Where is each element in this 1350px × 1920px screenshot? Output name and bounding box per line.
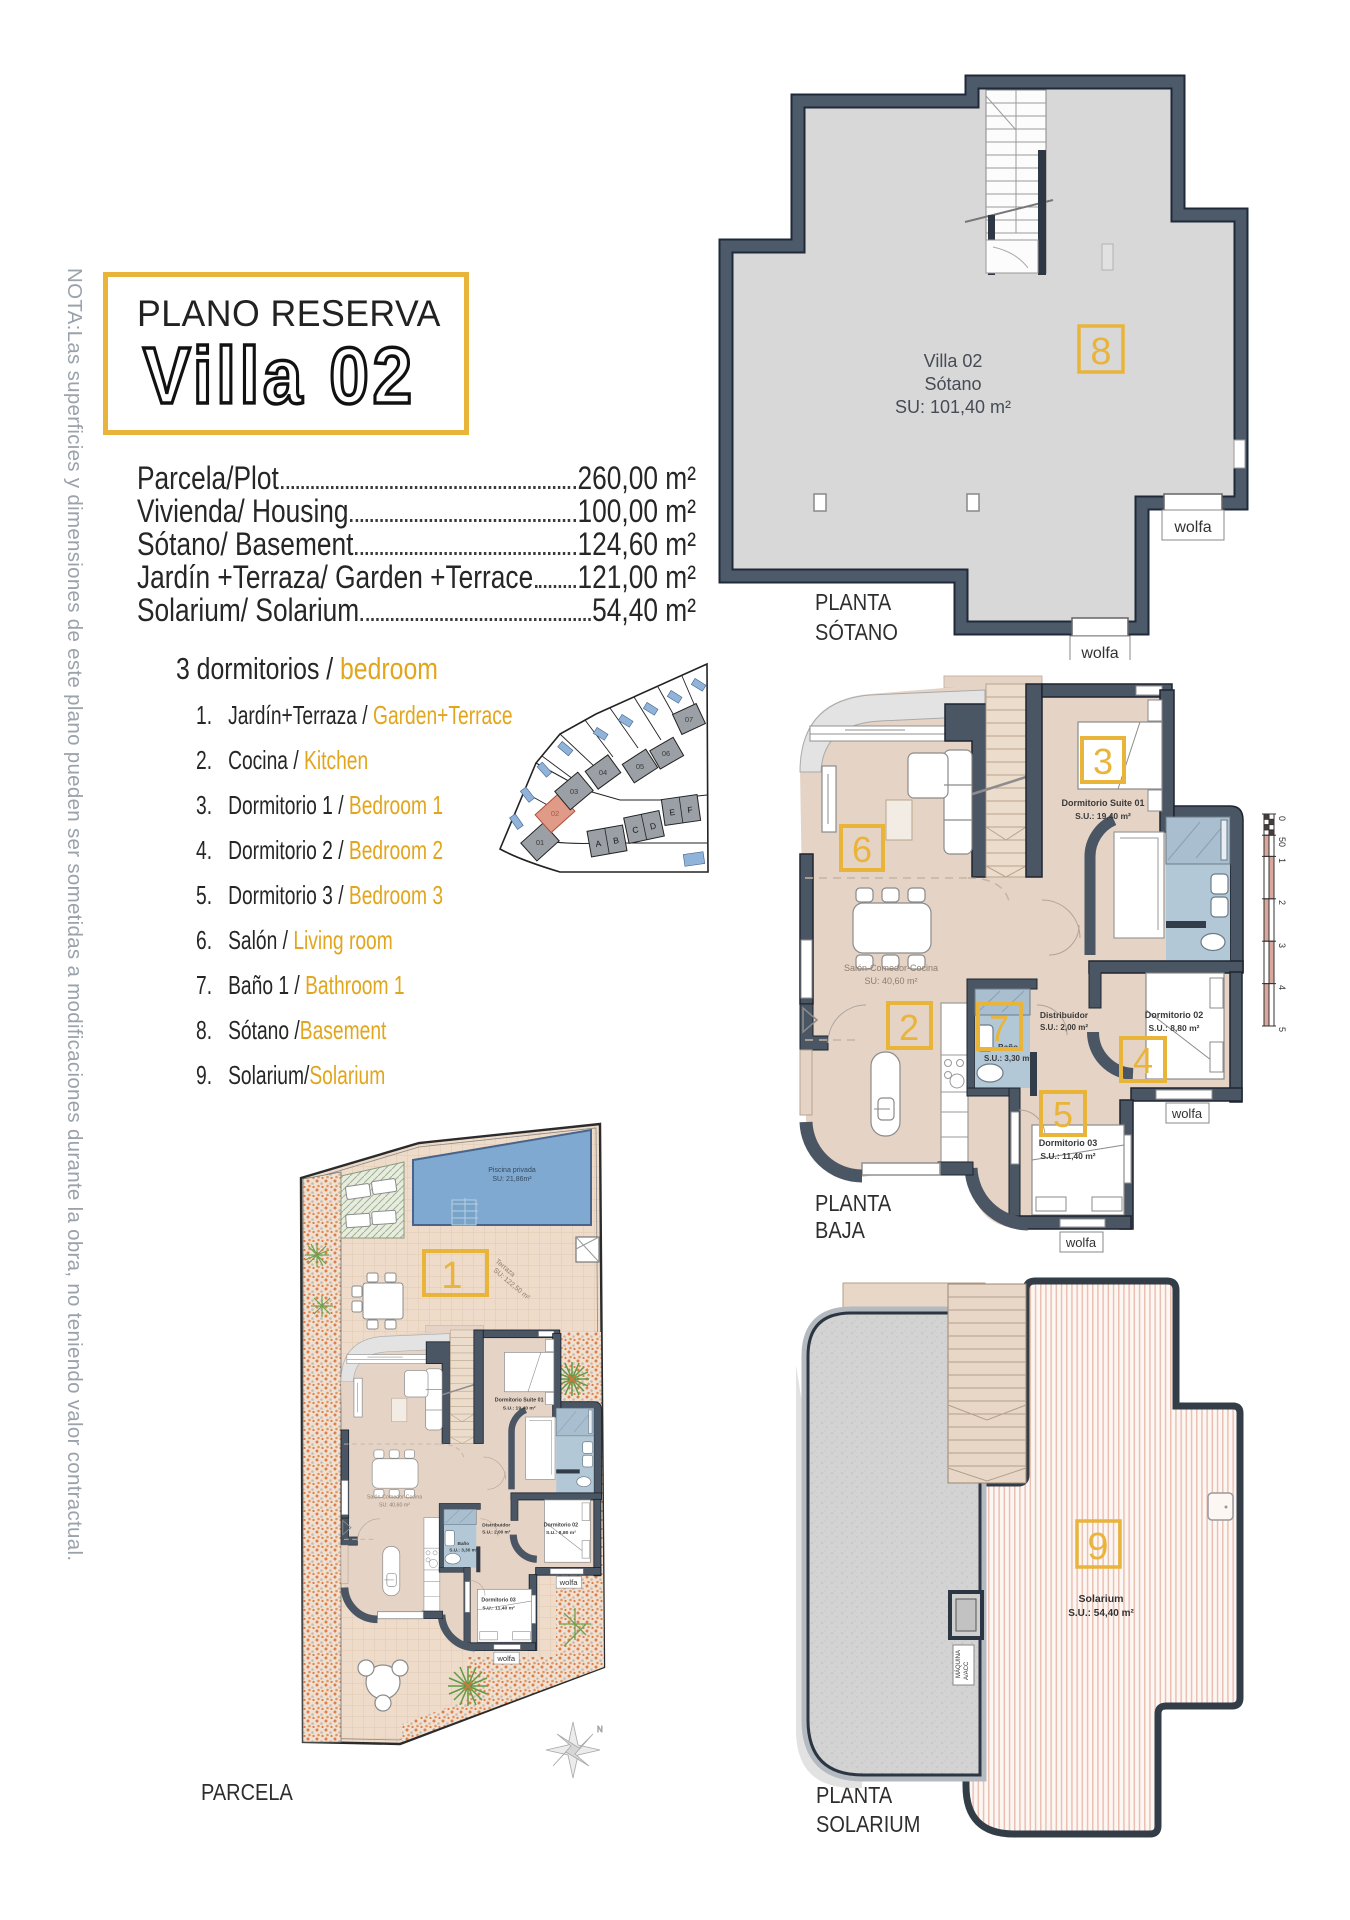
svg-text:3: 3 xyxy=(1093,741,1113,782)
svg-text:50: 50 xyxy=(1277,837,1287,847)
svg-text:3: 3 xyxy=(1277,943,1287,948)
svg-text:2: 2 xyxy=(899,1007,919,1048)
svg-text:SU: 21,86m²: SU: 21,86m² xyxy=(492,1176,532,1183)
svg-text:N: N xyxy=(597,1725,603,1734)
svg-text:Dormitorio 03: Dormitorio 03 xyxy=(1039,1138,1098,1148)
svg-text:Solarium: Solarium xyxy=(1079,1593,1124,1605)
svg-text:9: 9 xyxy=(1087,1526,1108,1568)
svg-text:Villa 02: Villa 02 xyxy=(924,351,983,371)
svg-text:wolfa: wolfa xyxy=(1080,645,1118,660)
svg-text:4: 4 xyxy=(1133,1040,1153,1081)
svg-text:A/ACC: A/ACC xyxy=(964,1661,970,1680)
svg-text:04: 04 xyxy=(599,768,607,777)
svg-text:wolfa: wolfa xyxy=(1173,519,1211,536)
svg-text:7: 7 xyxy=(989,1008,1009,1049)
svg-text:SU: 40,60 m²: SU: 40,60 m² xyxy=(864,976,917,986)
svg-text:SU: 101,40 m²: SU: 101,40 m² xyxy=(895,397,1011,417)
svg-text:Salón-Comedor-Cocina: Salón-Comedor-Cocina xyxy=(844,963,938,973)
svg-text:1: 1 xyxy=(441,1255,462,1297)
svg-text:Dormitorio 02: Dormitorio 02 xyxy=(1145,1010,1204,1020)
svg-text:S.U.: 19,40 m²: S.U.: 19,40 m² xyxy=(1075,811,1131,821)
svg-text:8: 8 xyxy=(1090,331,1111,373)
svg-text:01: 01 xyxy=(536,838,544,847)
svg-text:05: 05 xyxy=(636,762,644,771)
svg-text:06: 06 xyxy=(662,749,670,758)
svg-text:Piscina privada: Piscina privada xyxy=(488,1167,536,1174)
svg-text:4: 4 xyxy=(1277,985,1287,990)
svg-text:MÁQUINA: MÁQUINA xyxy=(955,1650,962,1678)
svg-text:S.U.: 2,00 m²: S.U.: 2,00 m² xyxy=(1040,1023,1088,1032)
svg-text:5: 5 xyxy=(1053,1094,1073,1135)
svg-text:2: 2 xyxy=(1277,900,1287,905)
svg-text:S.U.: 54,40 m²: S.U.: 54,40 m² xyxy=(1068,1608,1134,1619)
svg-text:wolfa: wolfa xyxy=(1065,1235,1097,1250)
svg-text:6: 6 xyxy=(852,829,872,870)
svg-text:S.U.: 11,40 m²: S.U.: 11,40 m² xyxy=(1040,1151,1095,1161)
svg-text:5: 5 xyxy=(1277,1027,1287,1032)
svg-text:07: 07 xyxy=(685,715,693,724)
svg-text:Distribuidor: Distribuidor xyxy=(1040,1010,1089,1020)
svg-text:wolfa: wolfa xyxy=(1171,1106,1203,1121)
svg-text:03: 03 xyxy=(570,787,578,796)
svg-text:1: 1 xyxy=(1277,858,1287,863)
svg-text:S.U.: 3,30 m²: S.U.: 3,30 m² xyxy=(984,1054,1032,1063)
svg-text:02: 02 xyxy=(551,809,559,818)
svg-text:Dormitorio Suite 01: Dormitorio Suite 01 xyxy=(1061,798,1144,808)
svg-text:0: 0 xyxy=(1277,816,1287,821)
svg-text:Sótano: Sótano xyxy=(924,374,981,394)
svg-text:S.U.: 8,80 m²: S.U.: 8,80 m² xyxy=(1148,1023,1199,1033)
